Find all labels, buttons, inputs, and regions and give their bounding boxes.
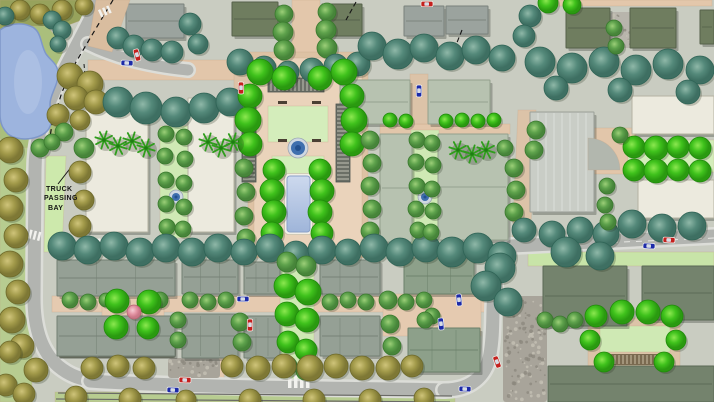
stone bbox=[541, 361, 545, 365]
stone bbox=[511, 375, 513, 377]
tree bbox=[75, 0, 93, 15]
stone bbox=[544, 374, 546, 376]
car-blue bbox=[438, 318, 444, 330]
stone bbox=[520, 348, 522, 350]
tree bbox=[340, 132, 364, 156]
tree bbox=[204, 234, 232, 262]
tree bbox=[363, 200, 381, 218]
tree bbox=[4, 168, 28, 192]
tree bbox=[462, 36, 490, 64]
tree bbox=[331, 59, 357, 85]
tree bbox=[409, 178, 425, 194]
tree bbox=[308, 200, 332, 224]
tree bbox=[676, 80, 700, 104]
tree bbox=[608, 78, 632, 102]
tree bbox=[585, 305, 607, 327]
tree bbox=[231, 239, 257, 265]
stone bbox=[506, 360, 510, 364]
tree bbox=[127, 305, 141, 319]
palm-center bbox=[144, 146, 148, 150]
stone bbox=[510, 332, 513, 335]
tree bbox=[0, 251, 23, 277]
car-red bbox=[663, 237, 675, 243]
lawn bbox=[268, 106, 328, 142]
stone bbox=[526, 314, 528, 316]
tree bbox=[74, 236, 102, 264]
car-window bbox=[124, 61, 129, 65]
stone bbox=[192, 366, 194, 368]
tree bbox=[74, 138, 94, 158]
bench bbox=[278, 101, 287, 104]
stone bbox=[530, 365, 532, 367]
tree bbox=[13, 383, 35, 402]
tree bbox=[103, 87, 133, 117]
tree bbox=[100, 232, 128, 260]
tree bbox=[0, 341, 21, 363]
stone bbox=[539, 380, 543, 384]
stone bbox=[539, 363, 541, 365]
car-red bbox=[421, 1, 433, 6]
tree bbox=[175, 221, 191, 237]
car-blue bbox=[121, 60, 133, 66]
stone bbox=[530, 395, 533, 398]
tree bbox=[689, 160, 711, 182]
fountain-center bbox=[295, 145, 301, 151]
stone bbox=[539, 332, 541, 334]
stone bbox=[517, 380, 520, 383]
tree bbox=[341, 107, 367, 133]
tree bbox=[176, 199, 192, 215]
pool bbox=[287, 176, 310, 232]
stone bbox=[531, 338, 534, 341]
tree bbox=[580, 330, 600, 350]
stone bbox=[509, 342, 511, 344]
stone bbox=[505, 335, 509, 339]
stone bbox=[536, 394, 540, 398]
car-blue bbox=[237, 296, 249, 301]
tree bbox=[159, 219, 175, 235]
car-window bbox=[666, 238, 671, 242]
palm-center bbox=[219, 146, 223, 150]
tree bbox=[409, 132, 425, 148]
tree bbox=[69, 215, 91, 237]
tree bbox=[552, 316, 568, 332]
palm-center bbox=[102, 138, 106, 142]
tree bbox=[44, 134, 60, 150]
tree bbox=[489, 45, 515, 71]
bench bbox=[312, 101, 321, 104]
tree bbox=[218, 292, 234, 308]
stone bbox=[627, 39, 629, 41]
tree bbox=[308, 66, 332, 90]
stone bbox=[520, 398, 524, 402]
tree bbox=[247, 59, 273, 85]
tree bbox=[274, 40, 294, 60]
tree bbox=[544, 76, 568, 100]
tree bbox=[519, 5, 541, 27]
tree bbox=[235, 207, 253, 225]
stone bbox=[535, 381, 537, 383]
stone bbox=[515, 397, 518, 400]
stone bbox=[528, 372, 532, 376]
tree bbox=[381, 315, 399, 333]
stone bbox=[507, 326, 510, 329]
stone bbox=[520, 358, 522, 360]
palm-center bbox=[456, 148, 460, 152]
tree bbox=[597, 197, 613, 213]
car-window bbox=[439, 321, 443, 326]
tree bbox=[237, 183, 255, 201]
stone bbox=[197, 373, 201, 377]
tree bbox=[296, 256, 316, 276]
stone bbox=[506, 366, 508, 368]
tree bbox=[525, 141, 543, 159]
tree bbox=[340, 84, 364, 108]
palm-center bbox=[116, 144, 120, 148]
stone bbox=[529, 383, 532, 386]
tree bbox=[563, 0, 581, 14]
tree bbox=[424, 181, 440, 197]
tree bbox=[594, 352, 614, 372]
stone bbox=[529, 329, 533, 333]
car-window bbox=[170, 388, 175, 392]
tree bbox=[137, 317, 159, 339]
tree bbox=[417, 312, 433, 328]
tree bbox=[383, 337, 401, 355]
tree bbox=[221, 355, 243, 377]
stone bbox=[626, 35, 628, 37]
stone bbox=[543, 332, 546, 335]
stone bbox=[519, 340, 523, 344]
building bbox=[638, 180, 714, 218]
tree bbox=[383, 39, 413, 69]
tree bbox=[105, 289, 129, 313]
tree bbox=[376, 356, 400, 380]
stone bbox=[203, 371, 207, 375]
tree bbox=[513, 25, 535, 47]
stone bbox=[178, 367, 180, 369]
tree bbox=[401, 355, 423, 377]
tree bbox=[507, 181, 525, 199]
tree bbox=[363, 154, 381, 172]
tree bbox=[69, 161, 91, 183]
tree bbox=[512, 218, 536, 242]
stone bbox=[521, 322, 525, 326]
stone bbox=[507, 333, 509, 335]
stone bbox=[505, 353, 509, 357]
tree bbox=[104, 315, 128, 339]
tree bbox=[358, 32, 386, 60]
stone bbox=[537, 345, 541, 349]
tree bbox=[62, 292, 78, 308]
tree bbox=[262, 200, 286, 224]
stone bbox=[178, 360, 181, 363]
tree bbox=[277, 252, 297, 272]
tree bbox=[667, 159, 689, 181]
stone bbox=[514, 369, 517, 372]
stone bbox=[532, 352, 535, 355]
tree bbox=[50, 36, 66, 52]
car-blue bbox=[643, 243, 655, 249]
tree bbox=[182, 292, 198, 308]
stone bbox=[507, 394, 511, 398]
site-plan-stage: TRUCK PASSING BAY bbox=[0, 0, 714, 402]
stone bbox=[171, 363, 174, 366]
stone bbox=[189, 362, 192, 365]
stone bbox=[526, 365, 529, 368]
tree bbox=[273, 22, 293, 42]
stone bbox=[517, 375, 520, 378]
stone bbox=[504, 339, 507, 342]
tree bbox=[439, 114, 453, 128]
stone bbox=[516, 344, 519, 347]
truck-passing-bay-label-line2: PASSING bbox=[44, 195, 78, 202]
car-window bbox=[248, 322, 252, 327]
tree bbox=[425, 203, 441, 219]
stone bbox=[183, 367, 185, 369]
stone bbox=[518, 327, 521, 330]
car-blue bbox=[416, 85, 421, 97]
stone bbox=[525, 332, 527, 334]
tree bbox=[361, 177, 379, 195]
tree bbox=[170, 332, 186, 348]
tree bbox=[6, 280, 30, 304]
tree bbox=[235, 107, 261, 133]
tree bbox=[383, 113, 397, 127]
tree bbox=[70, 110, 90, 130]
tree bbox=[335, 239, 361, 265]
tree bbox=[48, 232, 76, 260]
car-blue bbox=[167, 387, 179, 393]
tree bbox=[161, 41, 183, 63]
tree bbox=[678, 212, 706, 240]
tree bbox=[179, 13, 201, 35]
stone bbox=[507, 347, 510, 350]
tree bbox=[689, 137, 711, 159]
stone bbox=[531, 335, 534, 338]
car-window bbox=[417, 88, 421, 93]
stone bbox=[524, 362, 526, 364]
tree bbox=[170, 312, 186, 328]
tree bbox=[654, 352, 674, 372]
tree bbox=[80, 294, 96, 310]
stone bbox=[540, 334, 542, 336]
stone bbox=[535, 365, 538, 368]
stone bbox=[530, 391, 533, 394]
truck-passing-bay-label-line3: BAY bbox=[48, 205, 63, 212]
palm-center bbox=[231, 140, 235, 144]
tree bbox=[233, 333, 251, 351]
tree bbox=[0, 137, 23, 163]
tree bbox=[386, 238, 414, 266]
tree bbox=[130, 92, 162, 124]
tree bbox=[408, 154, 424, 170]
stone bbox=[542, 391, 546, 395]
tree bbox=[235, 159, 253, 177]
stone bbox=[539, 304, 542, 307]
tree bbox=[425, 157, 441, 173]
stone bbox=[507, 350, 511, 354]
tree bbox=[379, 291, 397, 309]
stone bbox=[525, 317, 527, 319]
tree bbox=[416, 292, 432, 308]
car-red bbox=[179, 377, 191, 383]
stone bbox=[534, 341, 537, 344]
tree bbox=[324, 354, 348, 378]
stone bbox=[524, 301, 527, 304]
stone bbox=[168, 359, 172, 363]
tree bbox=[527, 121, 545, 139]
tree bbox=[667, 136, 689, 158]
bench bbox=[278, 139, 287, 142]
tree bbox=[316, 20, 336, 40]
palm-center bbox=[484, 148, 488, 152]
tree bbox=[644, 159, 668, 183]
tree bbox=[551, 237, 581, 267]
tree bbox=[231, 313, 249, 331]
stone bbox=[520, 377, 522, 379]
stone bbox=[196, 363, 200, 367]
fountain-center bbox=[424, 196, 427, 199]
stone bbox=[524, 371, 528, 375]
stone bbox=[526, 391, 529, 394]
tree bbox=[618, 210, 646, 238]
car-window bbox=[424, 2, 429, 6]
stone bbox=[182, 361, 186, 365]
tree bbox=[310, 179, 334, 203]
tree bbox=[260, 179, 284, 203]
tree bbox=[612, 127, 628, 143]
stone bbox=[522, 361, 524, 363]
tree bbox=[653, 49, 683, 79]
stone bbox=[531, 355, 533, 357]
stone bbox=[215, 363, 218, 366]
stone bbox=[537, 350, 541, 354]
tree bbox=[161, 97, 191, 127]
paved-area bbox=[410, 74, 428, 124]
tree bbox=[24, 358, 48, 382]
tree bbox=[497, 140, 513, 156]
tree bbox=[152, 234, 180, 262]
tree bbox=[525, 47, 555, 77]
tree bbox=[47, 104, 69, 126]
stone bbox=[170, 369, 172, 371]
tree bbox=[275, 5, 293, 23]
tree bbox=[644, 136, 668, 160]
tree bbox=[158, 196, 174, 212]
tree bbox=[200, 294, 216, 310]
stone bbox=[525, 327, 527, 329]
stone bbox=[525, 341, 528, 344]
tree bbox=[360, 234, 388, 262]
stone bbox=[541, 330, 543, 332]
stone bbox=[540, 369, 542, 371]
car-blue bbox=[459, 386, 471, 392]
stone bbox=[212, 364, 215, 367]
stone bbox=[515, 321, 518, 324]
stone bbox=[190, 370, 194, 374]
tree bbox=[636, 300, 660, 324]
stone bbox=[511, 341, 515, 345]
tree bbox=[487, 113, 501, 127]
tree bbox=[295, 308, 319, 332]
tree bbox=[471, 114, 485, 128]
tree bbox=[408, 201, 424, 217]
building bbox=[632, 96, 714, 134]
stone bbox=[520, 373, 524, 377]
palm-center bbox=[130, 139, 134, 143]
stone bbox=[203, 364, 205, 366]
stone bbox=[513, 346, 516, 349]
site-plan-canvas: TRUCK PASSING BAY bbox=[0, 0, 714, 402]
car-window bbox=[239, 85, 243, 90]
car-red bbox=[247, 319, 252, 331]
tree bbox=[505, 159, 523, 177]
car-window bbox=[457, 297, 461, 302]
tree bbox=[272, 66, 296, 90]
tree bbox=[107, 355, 129, 377]
tree bbox=[600, 214, 616, 230]
stone bbox=[531, 343, 535, 347]
tree bbox=[398, 294, 414, 310]
tree bbox=[494, 288, 522, 316]
tree bbox=[295, 279, 321, 305]
tree bbox=[0, 195, 23, 221]
tree bbox=[410, 34, 438, 62]
stone bbox=[198, 372, 200, 374]
car-blue bbox=[456, 294, 462, 306]
tree bbox=[623, 159, 645, 181]
tree bbox=[361, 131, 379, 149]
tree bbox=[177, 151, 193, 167]
tree bbox=[263, 159, 285, 181]
stone bbox=[510, 390, 512, 392]
tree bbox=[297, 355, 323, 381]
palm-center bbox=[206, 140, 210, 144]
car-window bbox=[182, 378, 187, 382]
stone bbox=[525, 312, 527, 314]
tree bbox=[274, 274, 298, 298]
tree bbox=[158, 126, 174, 142]
tree bbox=[176, 175, 192, 191]
stone bbox=[530, 325, 534, 329]
tree bbox=[158, 172, 174, 188]
tree bbox=[309, 159, 331, 181]
tree bbox=[350, 356, 374, 380]
pond-highlight bbox=[14, 50, 42, 114]
tree bbox=[246, 356, 270, 380]
stone bbox=[509, 330, 512, 333]
crosswalk-bar bbox=[294, 375, 298, 388]
tree bbox=[666, 330, 686, 350]
tree bbox=[81, 357, 103, 379]
tree bbox=[0, 7, 14, 25]
tree bbox=[437, 237, 467, 267]
tree bbox=[178, 238, 206, 266]
car-window bbox=[646, 244, 651, 248]
tree bbox=[608, 38, 624, 54]
truck-passing-bay-label-line1: TRUCK bbox=[46, 186, 73, 193]
tree bbox=[606, 20, 622, 36]
fountain-center bbox=[175, 196, 178, 199]
car-window bbox=[462, 387, 467, 391]
tree bbox=[424, 135, 440, 151]
tree bbox=[4, 224, 28, 248]
stone bbox=[539, 336, 543, 340]
stone bbox=[517, 352, 519, 354]
stone bbox=[205, 366, 209, 370]
tree bbox=[423, 224, 439, 240]
